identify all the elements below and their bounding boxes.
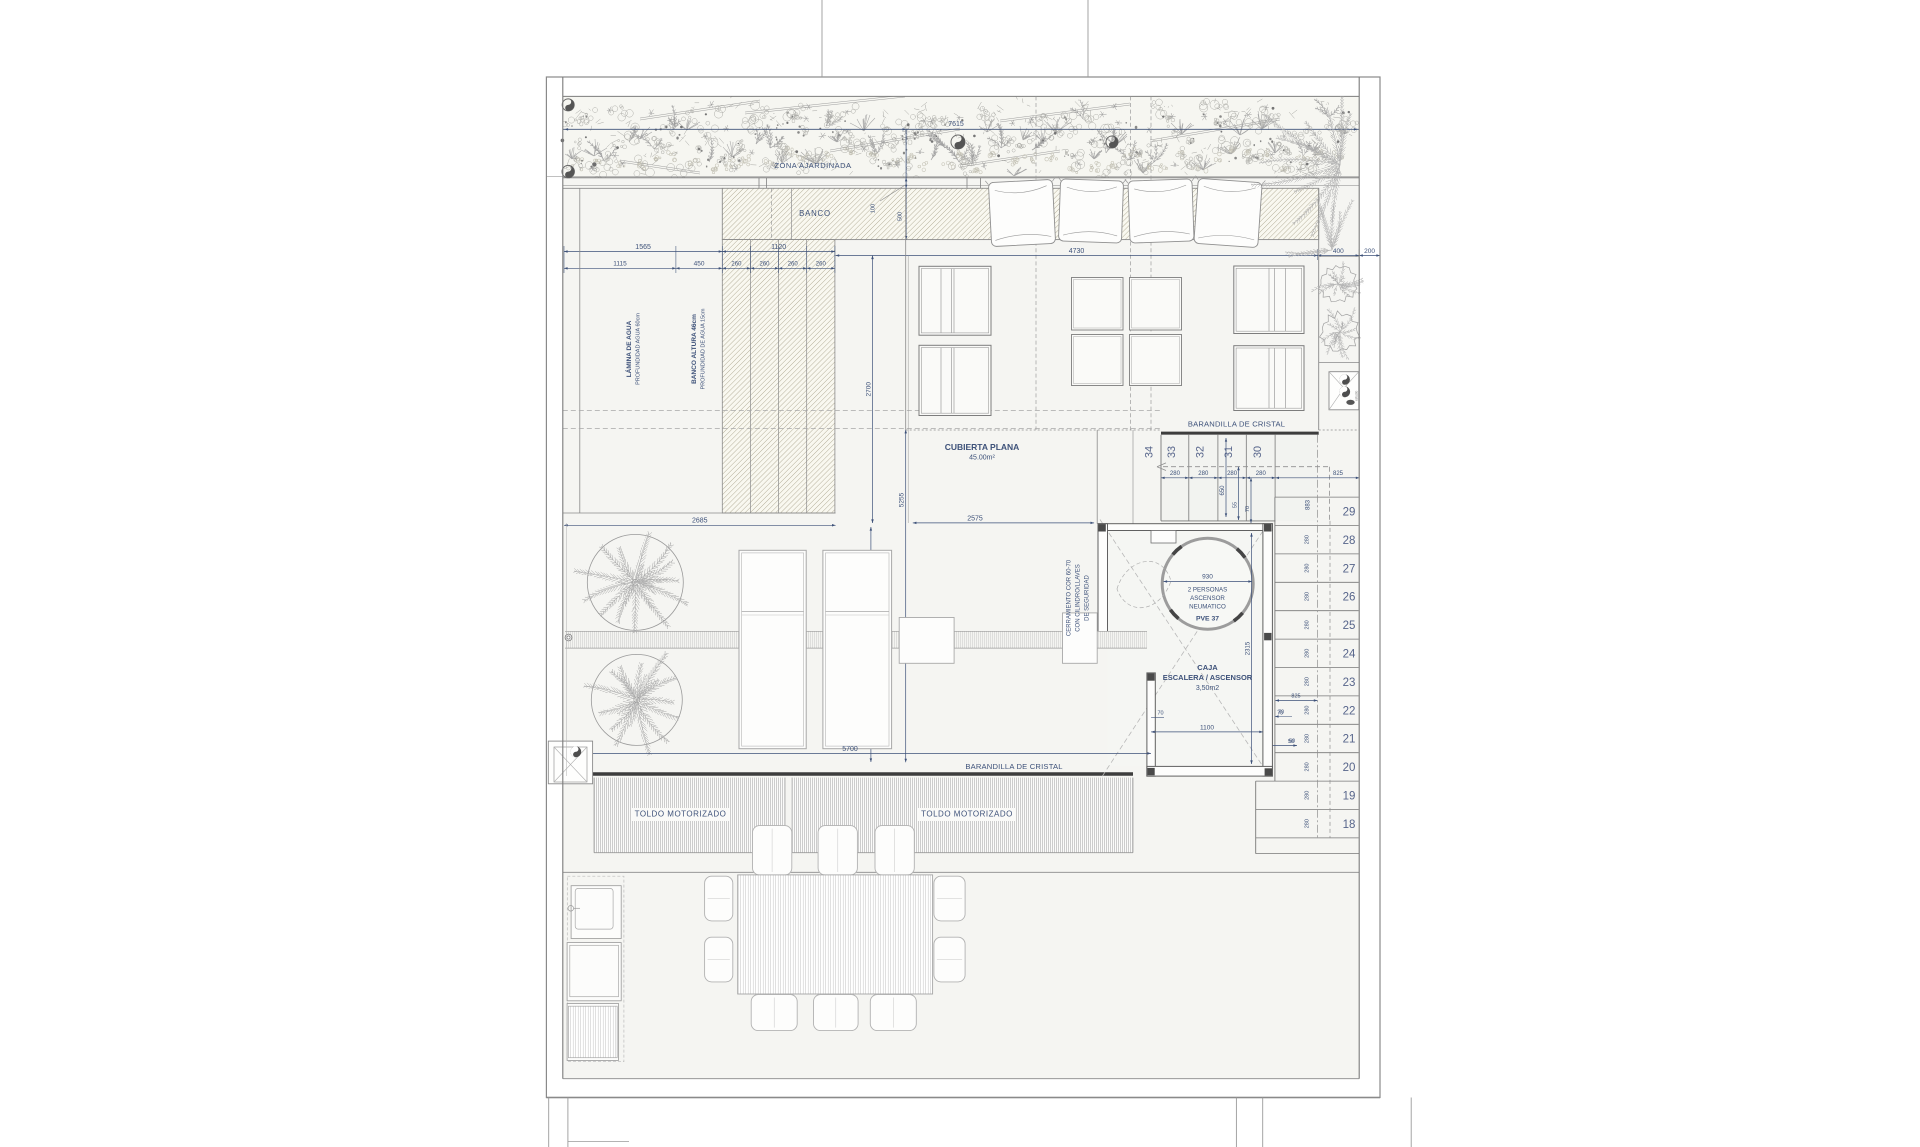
- svg-text:5255: 5255: [899, 492, 906, 507]
- svg-text:18: 18: [1343, 819, 1356, 831]
- svg-text:260: 260: [759, 262, 770, 268]
- svg-text:estudio: estudio: [1355, 390, 1359, 401]
- svg-text:CERRAMIENTO COR 60-70: CERRAMIENTO COR 60-70: [1067, 559, 1073, 636]
- svg-text:280: 280: [1305, 706, 1311, 715]
- svg-text:280: 280: [1170, 471, 1181, 477]
- svg-text:22: 22: [1343, 705, 1356, 717]
- svg-text:1100: 1100: [1200, 724, 1214, 731]
- svg-text:PVE 37: PVE 37: [1196, 616, 1219, 623]
- svg-text:280: 280: [1305, 564, 1311, 573]
- svg-text:CAJA: CAJA: [1197, 663, 1218, 672]
- svg-text:280: 280: [1305, 649, 1311, 658]
- svg-text:280: 280: [1305, 819, 1311, 828]
- svg-text:ZONA AJARDINADA: ZONA AJARDINADA: [774, 161, 851, 170]
- svg-text:30: 30: [1252, 446, 1264, 458]
- svg-text:280: 280: [1256, 471, 1267, 477]
- svg-text:DE SEGURIDAD: DE SEGURIDAD: [1085, 575, 1091, 621]
- svg-text:LÁMINA DE AGUA: LÁMINA DE AGUA: [624, 320, 633, 377]
- svg-text:1565: 1565: [635, 244, 651, 251]
- svg-text:280: 280: [1305, 762, 1311, 771]
- svg-text:280: 280: [1305, 677, 1311, 686]
- svg-text:2315: 2315: [1245, 641, 1251, 655]
- svg-text:21: 21: [1343, 734, 1356, 746]
- svg-text:1115: 1115: [613, 261, 627, 268]
- svg-text:23: 23: [1343, 677, 1356, 689]
- svg-text:28: 28: [1343, 535, 1356, 547]
- svg-text:70: 70: [1157, 711, 1163, 717]
- svg-text:TOLDO MOTORIZADO: TOLDO MOTORIZADO: [635, 810, 727, 819]
- svg-text:650: 650: [1220, 485, 1226, 496]
- svg-text:ESCALERA / ASCENSOR: ESCALERA / ASCENSOR: [1163, 673, 1253, 682]
- svg-text:19: 19: [1343, 791, 1356, 803]
- svg-text:280: 280: [1305, 620, 1311, 629]
- svg-text:2 PERSONAS: 2 PERSONAS: [1188, 587, 1228, 594]
- svg-text:280: 280: [1305, 592, 1311, 601]
- svg-text:5700: 5700: [842, 746, 858, 753]
- svg-text:CON CILINDRO/LLAVES: CON CILINDRO/LLAVES: [1076, 564, 1082, 632]
- svg-text:25: 25: [1343, 620, 1356, 632]
- svg-text:26: 26: [1343, 592, 1356, 604]
- svg-text:34: 34: [1144, 446, 1156, 458]
- svg-text:PROFUNDIDAD DE AGUA 15cm: PROFUNDIDAD DE AGUA 15cm: [701, 308, 707, 389]
- svg-text:280: 280: [1305, 791, 1311, 800]
- svg-text:33: 33: [1166, 446, 1178, 458]
- svg-text:BANCO ALTURA 46cm: BANCO ALTURA 46cm: [691, 314, 698, 384]
- svg-text:32: 32: [1194, 446, 1206, 458]
- svg-text:70: 70: [1277, 711, 1283, 717]
- svg-text:CUBIERTA PLANA: CUBIERTA PLANA: [945, 442, 1020, 452]
- svg-text:500: 500: [898, 212, 904, 221]
- svg-text:55: 55: [1232, 502, 1238, 508]
- svg-text:280: 280: [1305, 535, 1311, 544]
- svg-text:450: 450: [694, 261, 705, 268]
- svg-text:280: 280: [1227, 471, 1238, 477]
- svg-text:400: 400: [1333, 248, 1344, 255]
- svg-text:280: 280: [1198, 471, 1209, 477]
- svg-text:2685: 2685: [692, 518, 708, 525]
- svg-text:260: 260: [816, 262, 827, 268]
- svg-text:20: 20: [1343, 762, 1356, 774]
- svg-text:ASCENSOR: ASCENSOR: [1190, 595, 1225, 602]
- svg-text:883: 883: [1306, 499, 1312, 510]
- svg-text:260: 260: [731, 262, 742, 268]
- svg-text:PROFUNDIDAD AGUA 60cm: PROFUNDIDAD AGUA 60cm: [636, 313, 642, 385]
- svg-text:31: 31: [1223, 446, 1235, 458]
- svg-text:BARANDILLA DE CRISTAL: BARANDILLA DE CRISTAL: [965, 762, 1062, 771]
- svg-text:7615: 7615: [948, 121, 964, 128]
- svg-text:825: 825: [1333, 471, 1344, 477]
- svg-text:3,50m2: 3,50m2: [1196, 685, 1219, 692]
- svg-text:100: 100: [871, 204, 877, 213]
- svg-text:27: 27: [1343, 563, 1356, 575]
- svg-text:200: 200: [1364, 248, 1375, 255]
- svg-text:2700: 2700: [865, 382, 872, 397]
- svg-text:29: 29: [1343, 507, 1356, 519]
- svg-text:930: 930: [1202, 574, 1213, 581]
- svg-text:2575: 2575: [967, 515, 983, 522]
- svg-text:TOLDO MOTORIZADO: TOLDO MOTORIZADO: [921, 810, 1013, 819]
- svg-text:280: 280: [1305, 734, 1311, 743]
- svg-text:24: 24: [1343, 649, 1356, 661]
- svg-text:BANCO: BANCO: [799, 209, 831, 218]
- svg-text:BARANDILLA DE CRISTAL: BARANDILLA DE CRISTAL: [1188, 420, 1285, 429]
- svg-text:NEUMATICO: NEUMATICO: [1189, 604, 1226, 611]
- svg-text:4730: 4730: [1069, 248, 1085, 255]
- svg-text:45.00m²: 45.00m²: [969, 455, 995, 462]
- svg-text:70: 70: [1245, 506, 1251, 512]
- svg-text:50: 50: [1288, 739, 1294, 745]
- svg-text:260: 260: [788, 262, 799, 268]
- svg-text:825: 825: [1291, 694, 1300, 700]
